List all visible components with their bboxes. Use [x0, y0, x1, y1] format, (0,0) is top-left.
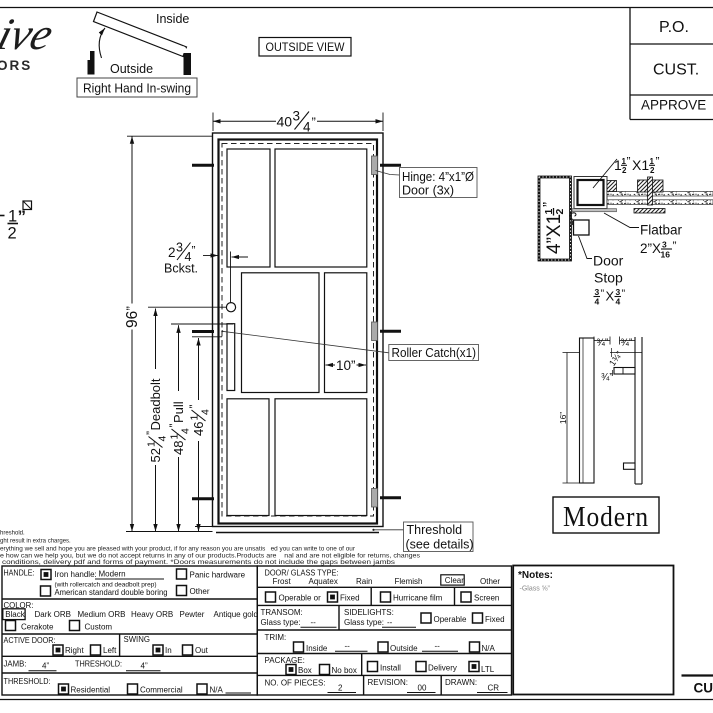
svg-text:SIDELIGHTS:: SIDELIGHTS: — [344, 608, 394, 617]
svg-text:NO. OF PIECES:: NO. OF PIECES: — [265, 679, 326, 688]
svg-text:CR: CR — [488, 684, 500, 693]
svg-text:Heavy ORB: Heavy ORB — [131, 610, 173, 619]
svg-text:CUS: CUS — [694, 681, 713, 696]
svg-text:ive: ive — [0, 9, 59, 59]
svg-text:HANDLE:: HANDLE: — [4, 569, 35, 578]
svg-text:Inside: Inside — [306, 644, 328, 653]
svg-text:”: ” — [673, 239, 677, 253]
svg-text:ORS: ORS — [0, 58, 32, 73]
svg-text:”: ” — [192, 244, 196, 258]
svg-text:erything we sell and hope you: erything we sell and hope you are please… — [0, 547, 355, 553]
svg-text:2”X: 2”X — [640, 241, 661, 256]
svg-text:Pewter: Pewter — [180, 610, 205, 619]
svg-text:”: ” — [540, 202, 557, 207]
svg-text:¾”: ¾” — [621, 338, 633, 349]
svg-text:Modern: Modern — [99, 570, 126, 579]
svg-text:OUTSIDE VIEW: OUTSIDE VIEW — [266, 42, 345, 54]
svg-text:--: -- — [311, 618, 317, 627]
svg-text:Door: Door — [593, 253, 624, 269]
svg-text:3: 3 — [176, 241, 183, 255]
svg-text:16: 16 — [661, 250, 671, 260]
svg-text:CUST.: CUST. — [653, 62, 699, 79]
svg-text:Other: Other — [190, 587, 210, 596]
svg-text:TRANSOM:: TRANSOM: — [261, 608, 303, 617]
svg-text:10”: 10” — [336, 358, 356, 373]
svg-text:Fixed: Fixed — [485, 615, 505, 624]
svg-text:--: -- — [345, 642, 351, 651]
svg-text:4”: 4” — [141, 662, 148, 671]
svg-text:Other: Other — [480, 577, 500, 586]
svg-text:Flemish: Flemish — [395, 577, 423, 586]
svg-text:2: 2 — [168, 245, 176, 260]
svg-text:Aquatex: Aquatex — [309, 577, 338, 586]
svg-text:N/A: N/A — [482, 644, 496, 653]
svg-text:4: 4 — [595, 297, 600, 307]
svg-text:Pull: Pull — [171, 401, 186, 423]
svg-text:Flatbar: Flatbar — [640, 223, 683, 238]
svg-text:--: -- — [387, 618, 393, 627]
svg-text:4: 4 — [200, 409, 212, 415]
svg-text:Cerakote: Cerakote — [21, 623, 54, 632]
svg-text:”: ” — [627, 155, 631, 169]
svg-text:PACKAGE:: PACKAGE: — [265, 656, 305, 665]
svg-text:Operable: Operable — [434, 615, 467, 624]
svg-text:Right: Right — [65, 646, 84, 655]
svg-text:16”: 16” — [558, 412, 568, 424]
svg-text:TRIM:: TRIM: — [265, 633, 287, 642]
svg-text:”: ” — [187, 405, 201, 409]
svg-text:Out: Out — [195, 646, 209, 655]
svg-text:4: 4 — [616, 297, 621, 307]
svg-text:LTL: LTL — [481, 665, 495, 674]
svg-text:¾”: ¾” — [601, 372, 613, 383]
svg-text:In: In — [165, 646, 172, 655]
svg-text:Outside: Outside — [390, 644, 418, 653]
svg-text:”: ” — [312, 115, 316, 130]
svg-text:Antique gold: Antique gold — [214, 610, 258, 619]
svg-text:96: 96 — [124, 311, 141, 328]
svg-text:ght result in extra charges.: ght result in extra charges. — [0, 539, 71, 545]
svg-text:Clear: Clear — [445, 576, 464, 585]
svg-text:No box: No box — [332, 666, 357, 675]
svg-text:Black: Black — [5, 610, 26, 619]
svg-text:3: 3 — [616, 287, 621, 297]
svg-text:Right Hand In-swing: Right Hand In-swing — [83, 82, 191, 96]
svg-text:Modern: Modern — [563, 502, 649, 533]
svg-text:2: 2 — [650, 166, 655, 175]
svg-text:Left: Left — [103, 646, 117, 655]
svg-text:¾”: ¾” — [597, 338, 609, 349]
svg-text:1: 1 — [650, 157, 655, 166]
svg-text:Glass type:: Glass type: — [344, 618, 384, 627]
svg-text:Inside: Inside — [156, 12, 189, 26]
svg-text:X1: X1 — [632, 157, 649, 173]
svg-text:40: 40 — [277, 114, 293, 130]
svg-text:4: 4 — [180, 428, 192, 434]
svg-text:”: ” — [622, 288, 626, 300]
svg-text:X: X — [606, 289, 615, 304]
svg-text:”: ” — [167, 424, 181, 428]
svg-text:ACTIVE DOOR:: ACTIVE DOOR: — [4, 636, 56, 645]
svg-text:3: 3 — [595, 287, 600, 297]
svg-text:--: -- — [435, 642, 441, 651]
svg-text:*Notes:: *Notes: — [518, 570, 553, 581]
svg-text:REVISION:: REVISION: — [368, 678, 408, 687]
svg-text:Threshold: Threshold — [407, 523, 463, 537]
svg-text:”: ” — [656, 155, 660, 169]
svg-text:Deadbolt: Deadbolt — [148, 378, 163, 430]
svg-text:Glass type:: Glass type: — [261, 618, 301, 627]
svg-text:SWING: SWING — [124, 635, 150, 644]
svg-text:4: 4 — [157, 436, 169, 442]
svg-text:Operable or: Operable or — [279, 594, 322, 603]
svg-text:Iron handle:: Iron handle: — [55, 570, 97, 579]
svg-text:Panic hardware: Panic hardware — [190, 571, 246, 580]
svg-text:”: ” — [601, 288, 605, 300]
svg-text:3: 3 — [293, 109, 301, 124]
svg-text:4”X1: 4”X1 — [544, 214, 565, 254]
svg-text:3: 3 — [662, 240, 667, 250]
svg-text:THRESHOLD:: THRESHOLD: — [75, 660, 122, 669]
svg-text:Hinge: 4”x1”Ø: Hinge: 4”x1”Ø — [402, 170, 474, 184]
svg-text:APPROVE: APPROVE — [641, 98, 706, 113]
svg-text:00: 00 — [418, 684, 427, 693]
svg-text:hreshold.: hreshold. — [0, 531, 25, 537]
svg-text:Hurricane film: Hurricane film — [393, 594, 443, 603]
svg-text:DRAWN:: DRAWN: — [445, 678, 477, 687]
svg-text:(see details): (see details) — [406, 538, 474, 552]
svg-text:4”: 4” — [42, 662, 49, 671]
svg-text:THRESHOLD:: THRESHOLD: — [4, 677, 51, 686]
svg-text:46: 46 — [191, 422, 206, 436]
svg-text:Frost: Frost — [273, 577, 292, 586]
svg-text:Medium ORB: Medium ORB — [78, 610, 126, 619]
svg-text:Dark ORB: Dark ORB — [35, 610, 71, 619]
svg-text:”: ” — [124, 306, 139, 310]
svg-text:2: 2 — [8, 225, 17, 243]
svg-text:Bckst.: Bckst. — [164, 262, 198, 276]
svg-text:2: 2 — [338, 684, 343, 693]
svg-text:Rain: Rain — [356, 577, 372, 586]
svg-text:Door (3x): Door (3x) — [402, 184, 454, 198]
svg-text:Screen: Screen — [474, 594, 499, 603]
svg-text:JAMB:: JAMB: — [4, 660, 27, 669]
svg-text:Roller Catch(x1): Roller Catch(x1) — [392, 346, 477, 360]
svg-text:Stop: Stop — [594, 270, 623, 286]
svg-text:”: ” — [144, 431, 158, 435]
svg-text:American standard double borin: American standard double boring — [55, 588, 168, 597]
svg-text:4: 4 — [303, 120, 311, 135]
svg-text:-Glass ⅝”: -Glass ⅝” — [520, 586, 551, 593]
svg-text:Install: Install — [380, 664, 401, 673]
svg-text:N/A: N/A — [210, 686, 224, 695]
svg-text:P.O.: P.O. — [659, 19, 689, 36]
svg-text:Commercial: Commercial — [140, 686, 183, 695]
svg-text:48: 48 — [171, 441, 186, 455]
svg-text:2: 2 — [554, 209, 566, 215]
svg-text:Box: Box — [298, 666, 312, 675]
svg-text:Fixed: Fixed — [340, 594, 360, 603]
svg-text:e how can we help you, but we: e how can we help you, but we do not acc… — [0, 554, 420, 560]
svg-text:Residential: Residential — [71, 686, 111, 695]
svg-text:conditions, delivery pdf and f: conditions, delivery pdf and forms of pa… — [2, 560, 395, 566]
svg-text:Outside: Outside — [110, 62, 153, 76]
svg-text:52: 52 — [148, 448, 163, 462]
svg-text:Custom: Custom — [85, 623, 113, 632]
svg-text:Delivery: Delivery — [428, 664, 457, 673]
